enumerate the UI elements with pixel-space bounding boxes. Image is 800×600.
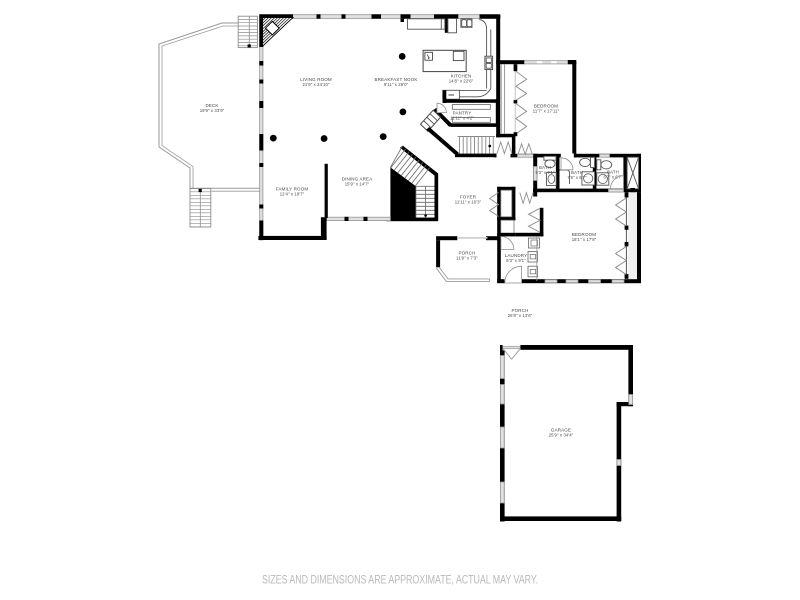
svg-text:14'8" x 22'6": 14'8" x 22'6" — [449, 79, 474, 84]
svg-text:11'7" x 17'11": 11'7" x 17'11" — [533, 109, 560, 114]
svg-text:26'8" x 13'6": 26'8" x 13'6" — [508, 313, 533, 318]
svg-text:8'3" x 9'1": 8'3" x 9'1" — [506, 258, 526, 263]
svg-text:19'9" x 33'9": 19'9" x 33'9" — [200, 108, 225, 113]
svg-text:6'7" x 6'7": 6'7" x 6'7" — [604, 175, 623, 180]
svg-text:9'11" x 26'0": 9'11" x 26'0" — [384, 82, 409, 87]
svg-text:11'11" x 10'3": 11'11" x 10'3" — [455, 200, 482, 205]
svg-text:SIZES AND DIMENSIONS ARE APPRO: SIZES AND DIMENSIONS ARE APPROXIMATE, AC… — [262, 575, 538, 587]
svg-text:25'9" x 34'4": 25'9" x 34'4" — [549, 433, 574, 438]
svg-text:21'9" x 24'10": 21'9" x 24'10" — [302, 82, 329, 87]
svg-text:11'9" x 7'3": 11'9" x 7'3" — [456, 256, 478, 261]
svg-text:11'11" x 4'2": 11'11" x 4'2" — [450, 116, 474, 121]
svg-text:5'3" x 7'1": 5'3" x 7'1" — [536, 170, 555, 175]
svg-text:7'6" x 6'7": 7'6" x 6'7" — [568, 175, 587, 180]
svg-text:18'1" x 17'8": 18'1" x 17'8" — [572, 237, 597, 242]
svg-text:15'9" x 14'7": 15'9" x 14'7" — [345, 182, 370, 187]
svg-text:12'4" x 18'7": 12'4" x 18'7" — [280, 192, 305, 197]
